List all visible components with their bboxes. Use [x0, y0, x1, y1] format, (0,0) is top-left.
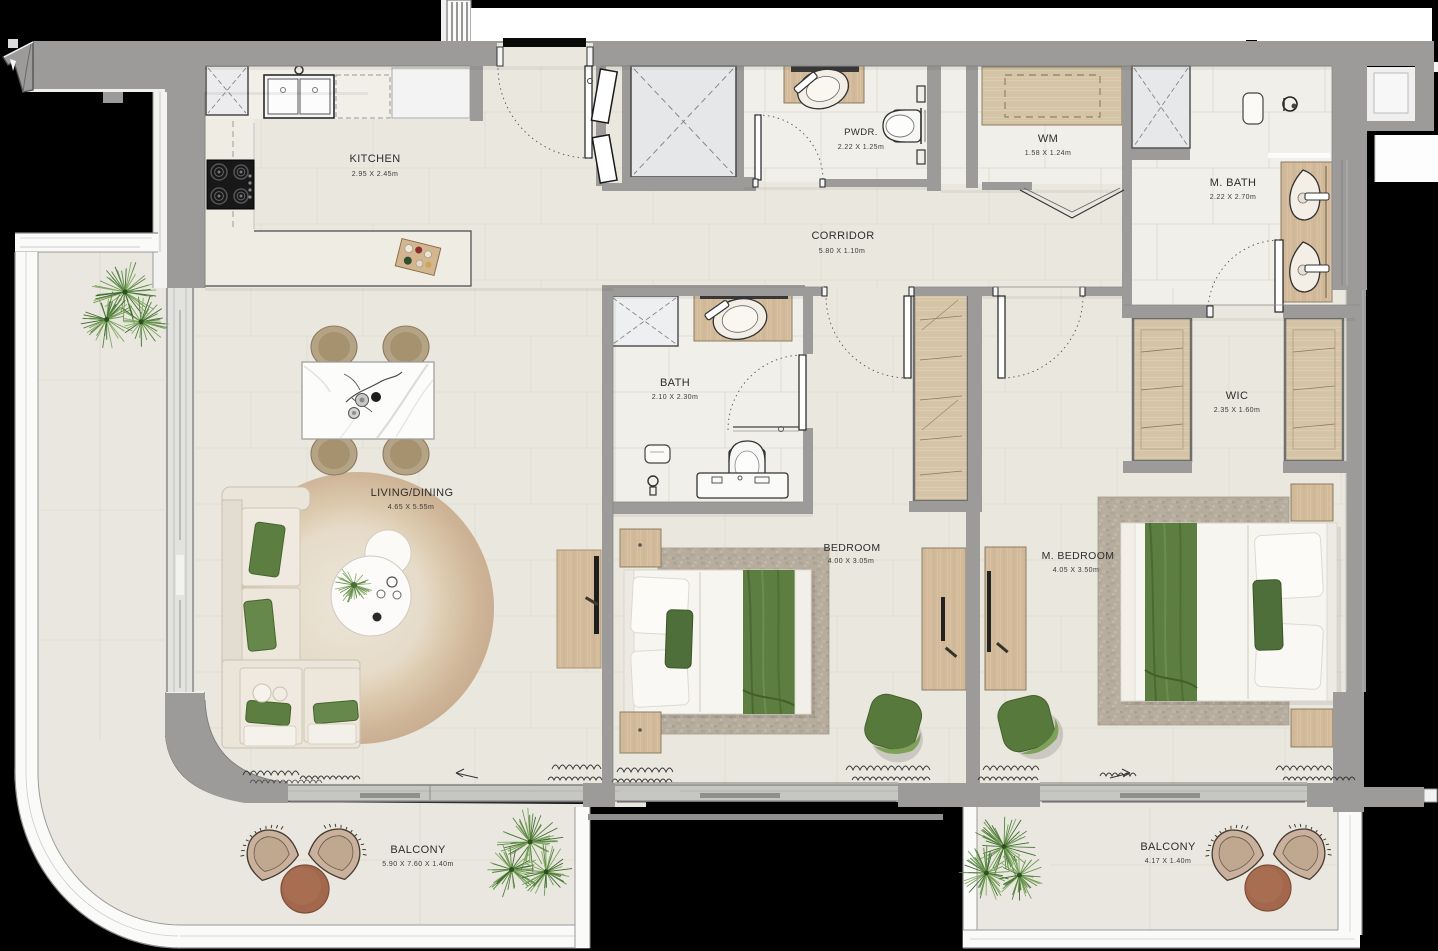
svg-text:BEDROOM: BEDROOM: [823, 542, 880, 554]
svg-text:2.35 X 1.60m: 2.35 X 1.60m: [1214, 407, 1260, 414]
svg-text:5.80 X 1.10m: 5.80 X 1.10m: [819, 248, 865, 255]
svg-text:4.05 X 3.50m: 4.05 X 3.50m: [1053, 567, 1099, 574]
svg-text:BALCONY: BALCONY: [390, 844, 446, 856]
svg-text:4.00 X 3.05m: 4.00 X 3.05m: [828, 558, 874, 565]
svg-text:1.58 X 1.24m: 1.58 X 1.24m: [1025, 150, 1071, 157]
svg-text:CORRIDOR: CORRIDOR: [811, 230, 874, 242]
svg-text:2.22 X 2.70m: 2.22 X 2.70m: [1210, 194, 1256, 201]
svg-text:2.22 X 1.25m: 2.22 X 1.25m: [838, 144, 884, 151]
svg-text:BATH: BATH: [660, 377, 690, 389]
svg-text:WM: WM: [1038, 133, 1058, 145]
svg-text:5.90 X 7.60 X 1.40m: 5.90 X 7.60 X 1.40m: [382, 861, 453, 868]
svg-text:M. BEDROOM: M. BEDROOM: [1042, 550, 1115, 562]
svg-text:4.17 X 1.40m: 4.17 X 1.40m: [1145, 858, 1191, 865]
svg-text:WIC: WIC: [1226, 390, 1249, 402]
svg-text:BALCONY: BALCONY: [1140, 841, 1196, 853]
svg-text:4.65 X 5.55m: 4.65 X 5.55m: [388, 504, 434, 511]
svg-text:KITCHEN: KITCHEN: [349, 153, 400, 165]
svg-text:2.10 X 2.30m: 2.10 X 2.30m: [652, 394, 698, 401]
svg-text:2.95 X 2.45m: 2.95 X 2.45m: [352, 171, 398, 178]
svg-text:PWDR.: PWDR.: [844, 127, 878, 138]
svg-text:LIVING/DINING: LIVING/DINING: [371, 487, 454, 499]
svg-text:M. BATH: M. BATH: [1210, 177, 1257, 189]
